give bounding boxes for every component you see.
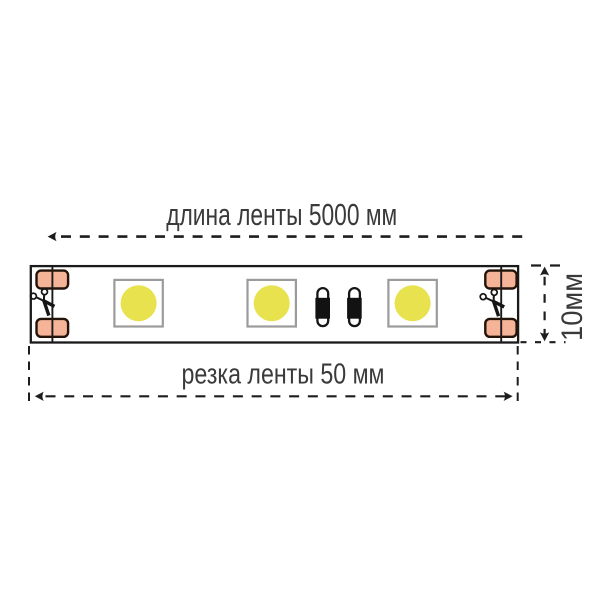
svg-text:длина ленты 5000 мм: длина ленты 5000 мм (166, 197, 397, 232)
svg-text:резка ленты 50 мм: резка ленты 50 мм (182, 359, 385, 391)
svg-text:10мм: 10мм (556, 273, 589, 341)
